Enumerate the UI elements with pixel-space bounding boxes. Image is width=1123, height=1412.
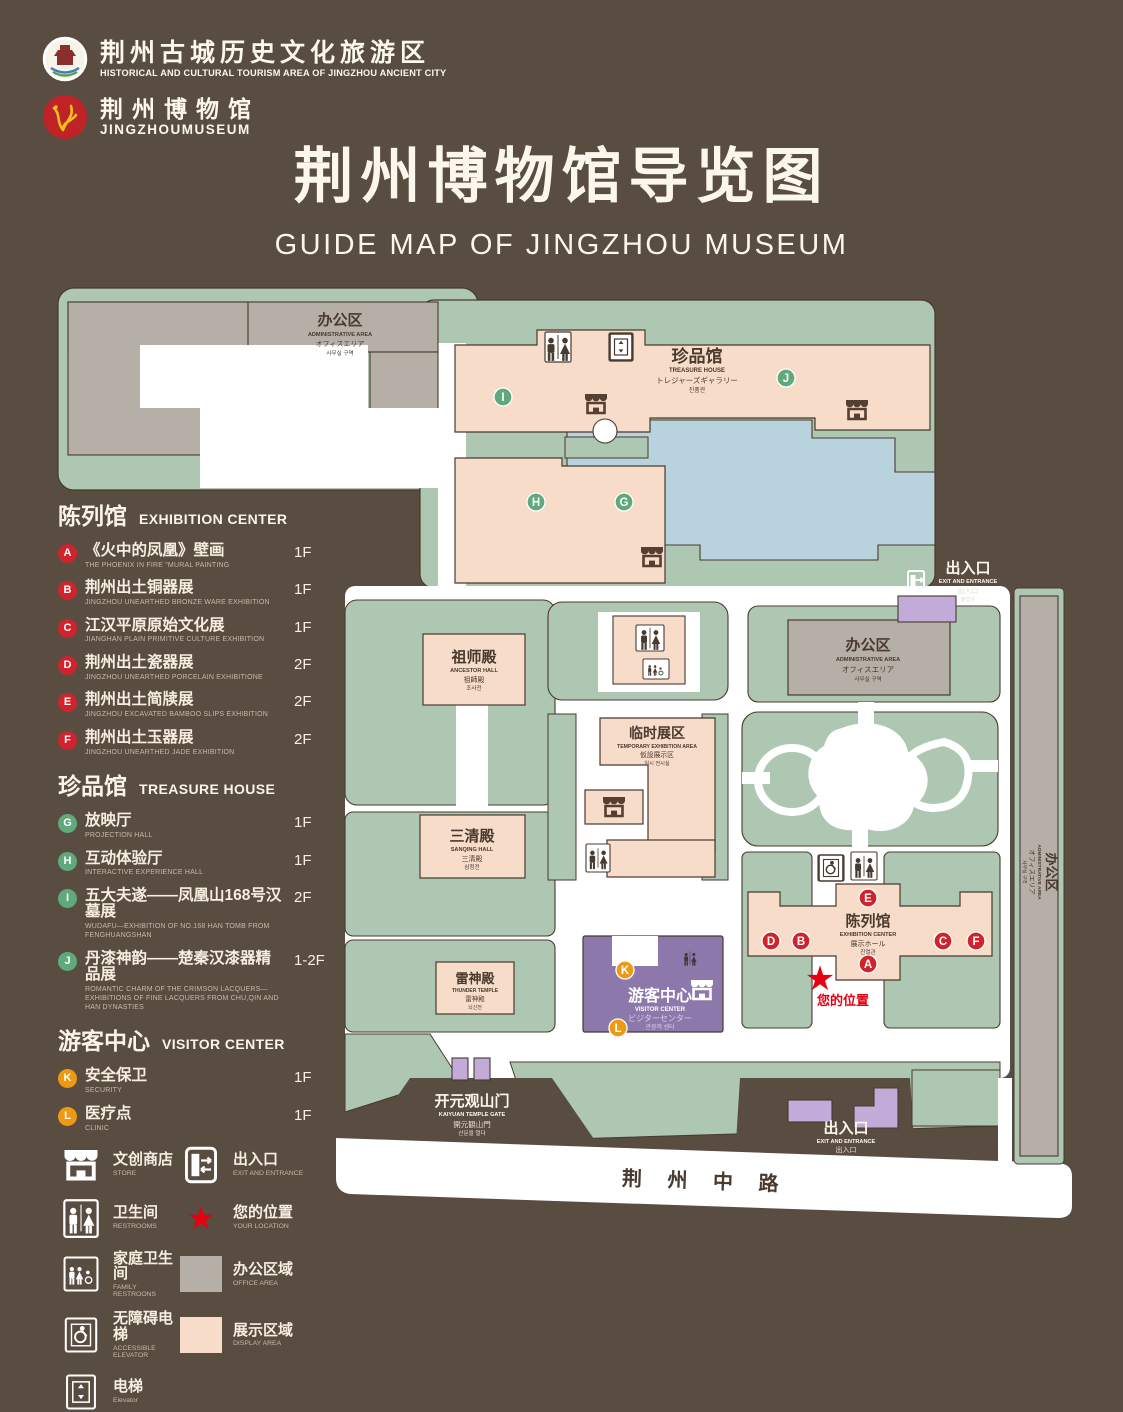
exit-icon (178, 1145, 224, 1185)
tourism-area-name-cn: 荆州古城历史文化旅游区 (100, 40, 446, 66)
badge-l: L (58, 1107, 77, 1126)
accessible-elevator-icon (58, 1315, 104, 1355)
badge-j: J (58, 952, 77, 971)
section-title-cn: 珍品馆 (58, 767, 127, 801)
item-floor: 1F (294, 619, 326, 636)
badge-b: B (58, 581, 77, 600)
exhibition-label-en: EXHIBITION CENTER (840, 932, 897, 938)
admin-e-label-cn: 办公区 (845, 636, 890, 654)
item-cn: 江汉平原原始文化展 (85, 618, 286, 634)
legend-section-visitor-center: 游客中心 VISITOR CENTER K安全保卫SECURITY1F L医疗点… (58, 1022, 326, 1132)
legend-section-exhibition-center: 陈列馆 EXHIBITION CENTER A《火中的凤凰》壁画THE PHOE… (58, 497, 326, 757)
restroom-icon (545, 332, 571, 362)
symbol-cn: 无障碍电梯 (113, 1311, 178, 1343)
badge-g: G (58, 814, 77, 833)
admin-nw-label-cn: 办公区 (317, 311, 362, 329)
family-restroom-icon (58, 1254, 104, 1294)
symbol-en: RESTROOMS (113, 1223, 158, 1230)
legend-item-j: J丹漆神韵——楚秦汉漆器精品展ROMANTIC CHARM OF THE CRI… (58, 951, 326, 1012)
ne-exit-label-kr: 출입구 (961, 595, 976, 603)
admin-e-label-kr: 사무실 구역 (854, 675, 881, 683)
store-icon (691, 980, 713, 999)
ne-exit-label-jp: 出入口 (958, 586, 979, 595)
svg-text:L: L (614, 1023, 621, 1035)
marker-K: K (616, 961, 634, 979)
item-cn: 《火中的凤凰》壁画 (85, 543, 286, 559)
admin-se-label-jp: オフィスエリア (1028, 849, 1036, 895)
store-icon (603, 797, 625, 816)
admin-se-label-kr: 사무실 구역 (1021, 860, 1028, 883)
item-en: SECURITY (85, 1086, 286, 1095)
temporary-label-kr: 임시 전시실 (644, 759, 670, 767)
symbol-en: STORE (113, 1170, 173, 1177)
badge-c: C (58, 619, 77, 638)
ancestor-label-cn: 祖师殿 (450, 648, 497, 666)
legend-symbol-office-area: 办公区域OFFICE AREA (178, 1251, 326, 1299)
item-en: WUDAFU—EXHIBITION OF NO.168 HAN TOMB FRO… (85, 922, 286, 940)
exhibition-label-cn: 陈列馆 (845, 912, 890, 930)
admin-nw-label-en: ADMINISTRATIVE AREA (308, 332, 372, 338)
sanqing-label-jp: 三清殿 (462, 854, 483, 863)
marker-B: B (792, 932, 810, 950)
gate-label-en: KAIYUAN TEMPLE GATE (439, 1112, 506, 1118)
treasure-label-cn: 珍品馆 (672, 346, 723, 366)
symbol-en: ACCESSIBLE ELEVATOR (113, 1345, 178, 1359)
office-area-swatch (180, 1256, 222, 1292)
item-en: ROMANTIC CHARM OF THE CRIMSON LACQUERS—E… (85, 985, 286, 1012)
treasure-label-kr: 진품관 (689, 386, 706, 394)
marker-L: L (609, 1019, 627, 1037)
item-en: JINGZHOU UNEARTHED PORCELAIN EXHIBITIONE (85, 673, 286, 682)
admin-se-label-en: ADMINISTRATIVE AREA (1036, 844, 1042, 900)
marker-D: D (762, 932, 780, 950)
badge-d: D (58, 656, 77, 675)
gate-label-jp: 開元観山門 (453, 1119, 491, 1129)
guide-map-poster: 办公区 ADMINISTRATIVE AREA オフィスエリア 사무실 구역 珍… (0, 0, 1123, 1280)
thunder-temple-building: 雷神殿 THUNDER TEMPLE 雷神殿 뇌신전 (436, 962, 514, 1014)
sanqing-label-kr: 삼청전 (464, 863, 479, 871)
admin-se-label-cn: 办公区 (1044, 852, 1059, 891)
ancestor-label-jp: 祖師殿 (464, 675, 485, 684)
admin-e-label-en: ADMINISTRATIVE AREA (836, 657, 900, 663)
legend-item-d: D荆州出土瓷器展JINGZHOU UNEARTHED PORCELAIN EXH… (58, 655, 326, 682)
marker-H: H (527, 493, 545, 511)
symbol-en: EXIT AND ENTRANCE (233, 1170, 303, 1177)
svg-text:K: K (621, 965, 630, 977)
marker-J: J (777, 369, 795, 387)
item-floor: 1F (294, 814, 326, 831)
badge-e: E (58, 693, 77, 712)
your-location-label: 您的位置 (817, 993, 869, 1008)
symbol-en: FAMILY RESTROONS (113, 1284, 178, 1298)
sanqing-label-cn: 三清殿 (449, 827, 495, 845)
gate-label-kr: 산문을 열다 (458, 1129, 485, 1137)
item-en: JINGZHOU UNEARTHED JADE EXHIBITION (85, 748, 286, 757)
admin-e-building: 办公区 ADMINISTRATIVE AREA オフィスエリア 사무실 구역 (788, 620, 950, 695)
item-en: CLINIC (85, 1124, 286, 1133)
gate-label-cn: 开元观山门 (434, 1092, 509, 1110)
visitor-label-cn: 游客中心 (628, 986, 692, 1005)
item-floor: 2F (294, 656, 326, 673)
symbol-cn: 展示区域 (233, 1323, 293, 1339)
visitor-label-en: VISITOR CENTER (635, 1007, 686, 1013)
sanqing-hall-building: 三清殿 SANQING HALL 三清殿 삼청전 (420, 815, 525, 878)
legend-symbol-elevator: 电梯Elevator (58, 1372, 178, 1412)
svg-text:F: F (972, 936, 979, 948)
marker-I: I (494, 388, 512, 406)
thunder-label-kr: 뇌신전 (468, 1004, 482, 1011)
display-area-swatch (180, 1317, 222, 1353)
item-floor: 2F (294, 693, 326, 710)
section-title-cn: 陈列馆 (58, 497, 127, 531)
thunder-label-en: THUNDER TEMPLE (452, 988, 499, 994)
item-cn: 丹漆神韵——楚秦汉漆器精品展 (85, 951, 286, 984)
visitor-label-kr: 관광객 센터 (645, 1023, 674, 1031)
south-exit-label-en: EXIT AND ENTRANCE (817, 1139, 876, 1145)
svg-text:I: I (501, 392, 504, 404)
legend-item-c: C江汉平原原始文化展JIANGHAN PLAIN PRIMITIVE CULTU… (58, 618, 326, 645)
south-exit-label-cn: 出入口 (823, 1119, 868, 1137)
admin-nw-label-kr: 사무실 구역 (326, 349, 353, 357)
legend-item-e: E荆州出土简牍展JINGZHOU EXCAVATED BAMBOO SLIPS … (58, 692, 326, 719)
ne-exit-label-cn: 出入口 (945, 559, 990, 577)
legend-item-i: I五大夫遂——凤凰山168号汉墓展WUDAFU—EXHIBITION OF NO… (58, 888, 326, 940)
symbol-cn: 家庭卫生间 (113, 1251, 178, 1283)
item-en: THE PHOENIX IN FIRE "MURAL PAINTING (85, 561, 286, 570)
admin-se-building: 办公区 ADMINISTRATIVE AREA オフィスエリア 사무실 구역 (1014, 588, 1064, 1164)
section-title-en: VISITOR CENTER (162, 1036, 285, 1052)
elevator-icon (58, 1372, 104, 1412)
admin-nw-label-jp: オフィスエリア (316, 340, 365, 348)
item-cn: 荆州出土铜器展 (85, 580, 286, 596)
thunder-label-jp: 雷神殿 (465, 994, 485, 1003)
legend-symbols: 文创商店STORE 出入口EXIT AND ENTRANCE 卫生间RESTRO… (58, 1145, 326, 1412)
marker-G: G (615, 493, 633, 511)
item-en: INTERACTIVE EXPERIENCE HALL (85, 868, 286, 877)
item-floor: 1F (294, 852, 326, 869)
item-floor: 1F (294, 544, 326, 561)
item-cn: 安全保卫 (85, 1068, 286, 1084)
marker-E: E (859, 889, 877, 907)
store-icon (58, 1145, 104, 1185)
item-cn: 荆州出土玉器展 (85, 730, 286, 746)
legend-symbol-restroom: 卫生间RESTROOMS (58, 1198, 178, 1238)
section-title-en: TREASURE HOUSE (139, 781, 275, 797)
exhibition-label-jp: 展示ホール (851, 940, 886, 948)
visitor-center-building: 游客中心 VISITOR CENTER ビジターセンター 관광객 센터 (583, 936, 723, 1032)
temporary-label-cn: 临时展区 (629, 725, 685, 741)
sanqing-label-en: SANQING HALL (451, 847, 494, 853)
legend-symbol-store: 文创商店STORE (58, 1145, 178, 1185)
symbol-cn: 办公区域 (233, 1262, 293, 1278)
legend-symbol-accessible-elevator: 无障碍电梯ACCESSIBLE ELEVATOR (58, 1311, 178, 1359)
svg-text:J: J (783, 373, 789, 385)
legend-panel: 陈列馆 EXHIBITION CENTER A《火中的凤凰》壁画THE PHOE… (58, 497, 326, 1412)
svg-text:D: D (767, 936, 775, 948)
item-floor: 2F (294, 731, 326, 748)
restroom-icon (636, 625, 664, 651)
treasure-label-jp: トレジャーズギャラリー (656, 375, 738, 385)
store-icon (641, 547, 663, 566)
badge-k: K (58, 1069, 77, 1088)
ancestor-label-en: ANCESTOR HALL (450, 668, 498, 674)
legend-item-k: K安全保卫SECURITY1F (58, 1068, 326, 1095)
badge-f: F (58, 731, 77, 750)
item-cn: 医疗点 (85, 1106, 286, 1122)
svg-text:A: A (864, 959, 872, 971)
legend-item-f: F荆州出土玉器展JINGZHOU UNEARTHED JADE EXHIBITI… (58, 730, 326, 757)
treasure-label-en: TREASURE HOUSE (669, 368, 725, 374)
restroom-icon (851, 852, 877, 880)
item-floor: 1F (294, 1107, 326, 1124)
badge-i: I (58, 889, 77, 908)
symbol-cn: 您的位置 (233, 1205, 293, 1221)
legend-item-g: G放映厅PROJECTION HALL1F (58, 813, 326, 840)
section-title-en: EXHIBITION CENTER (139, 511, 287, 527)
tourism-area-logo: 荆州古城历史文化旅游区 HISTORICAL AND CULTURAL TOUR… (42, 36, 446, 82)
badge-a: A (58, 544, 77, 563)
legend-symbol-display-area: 展示区域DISPLAY AREA (178, 1311, 326, 1359)
item-en: JIANGHAN PLAIN PRIMITIVE CULTURE EXHIBIT… (85, 635, 286, 644)
thunder-label-cn: 雷神殿 (455, 971, 495, 986)
temporary-exhibition-building: 临时展区 TEMPORARY EXHIBITION AREA 仮設展示区 임시 … (585, 718, 715, 877)
legend-symbol-your-location: ★ 您的位置YOUR LOCATION (178, 1198, 326, 1238)
temporary-label-jp: 仮設展示区 (640, 750, 674, 759)
museum-name-cn: 荆州博物馆 (100, 97, 260, 121)
garden (742, 702, 998, 848)
legend-item-h: H互动体验厅INTERACTIVE EXPERIENCE HALL1F (58, 851, 326, 878)
item-floor: 2F (294, 889, 326, 906)
item-cn: 荆州出土瓷器展 (85, 655, 286, 671)
visitor-label-jp: ビジターセンター (628, 1014, 692, 1023)
item-cn: 五大夫遂——凤凰山168号汉墓展 (85, 888, 286, 921)
item-floor: 1F (294, 581, 326, 598)
svg-text:E: E (864, 893, 872, 905)
symbol-cn: 文创商店 (113, 1152, 173, 1168)
symbol-cn: 电梯 (113, 1379, 143, 1395)
symbol-en: Elevator (113, 1397, 143, 1404)
road: 荆 州 中 路 (336, 1138, 1072, 1218)
accessible-elevator-icon (818, 855, 844, 881)
store-icon (585, 394, 607, 413)
item-floor: 1-2F (294, 952, 326, 969)
marker-F: F (967, 932, 985, 950)
item-cn: 互动体验厅 (85, 851, 286, 867)
symbol-en: DISPLAY AREA (233, 1340, 293, 1347)
south-exit-label-jp: 出入口 (836, 1145, 857, 1154)
symbol-en: OFFICE AREA (233, 1280, 293, 1287)
svg-text:H: H (532, 497, 540, 509)
legend-item-a: A《火中的凤凰》壁画THE PHOENIX IN FIRE "MURAL PAI… (58, 543, 326, 570)
legend-symbol-family-restroom: 家庭卫生间FAMILY RESTROONS (58, 1251, 178, 1299)
tourism-area-logo-icon (42, 36, 88, 82)
symbol-cn: 出入口 (233, 1152, 303, 1168)
page-title-en: GUIDE MAP OF JINGZHOU MUSEUM (0, 229, 1123, 262)
admin-e-label-jp: オフィスエリア (842, 665, 894, 674)
restroom-icon (586, 844, 610, 872)
store-icon (846, 400, 868, 419)
marker-C: C (934, 932, 952, 950)
badge-h: H (58, 852, 77, 871)
symbol-cn: 卫生间 (113, 1205, 158, 1221)
item-cn: 荆州出土简牍展 (85, 692, 286, 708)
item-en: JINGZHOU EXCAVATED BAMBOO SLIPS EXHIBITI… (85, 710, 286, 719)
elevator-icon (609, 333, 633, 361)
item-en: PROJECTION HALL (85, 831, 286, 840)
legend-symbol-exit: 出入口EXIT AND ENTRANCE (178, 1145, 326, 1185)
symbol-en: YOUR LOCATION (233, 1223, 293, 1230)
page-title-cn: 荆州博物馆导览图 (0, 128, 1123, 215)
family-restroom-icon (643, 659, 669, 679)
legend-item-b: B荆州出土铜器展JINGZHOU UNEARTHED BRONZE WARE E… (58, 580, 326, 607)
svg-text:G: G (620, 497, 629, 509)
section-title-cn: 游客中心 (58, 1022, 150, 1056)
restroom-icon (58, 1198, 104, 1238)
item-floor: 1F (294, 1069, 326, 1086)
legend-section-treasure-house: 珍品馆 TREASURE HOUSE G放映厅PROJECTION HALL1F… (58, 767, 326, 1012)
svg-text:B: B (797, 936, 805, 948)
location-star-icon: ★ (187, 1202, 216, 1234)
svg-text:C: C (939, 936, 947, 948)
tourism-area-name-en: HISTORICAL AND CULTURAL TOURISM AREA OF … (100, 68, 446, 78)
ancestor-label-kr: 조사전 (466, 684, 481, 692)
item-en: JINGZHOU UNEARTHED BRONZE WARE EXHIBITIO… (85, 598, 286, 607)
marker-A: A (859, 955, 877, 973)
temporary-label-en: TEMPORARY EXHIBITION AREA (617, 744, 697, 750)
item-cn: 放映厅 (85, 813, 286, 829)
legend-item-l: L医疗点CLINIC1F (58, 1106, 326, 1133)
ne-exit-label-en: EXIT AND ENTRANCE (939, 579, 998, 585)
